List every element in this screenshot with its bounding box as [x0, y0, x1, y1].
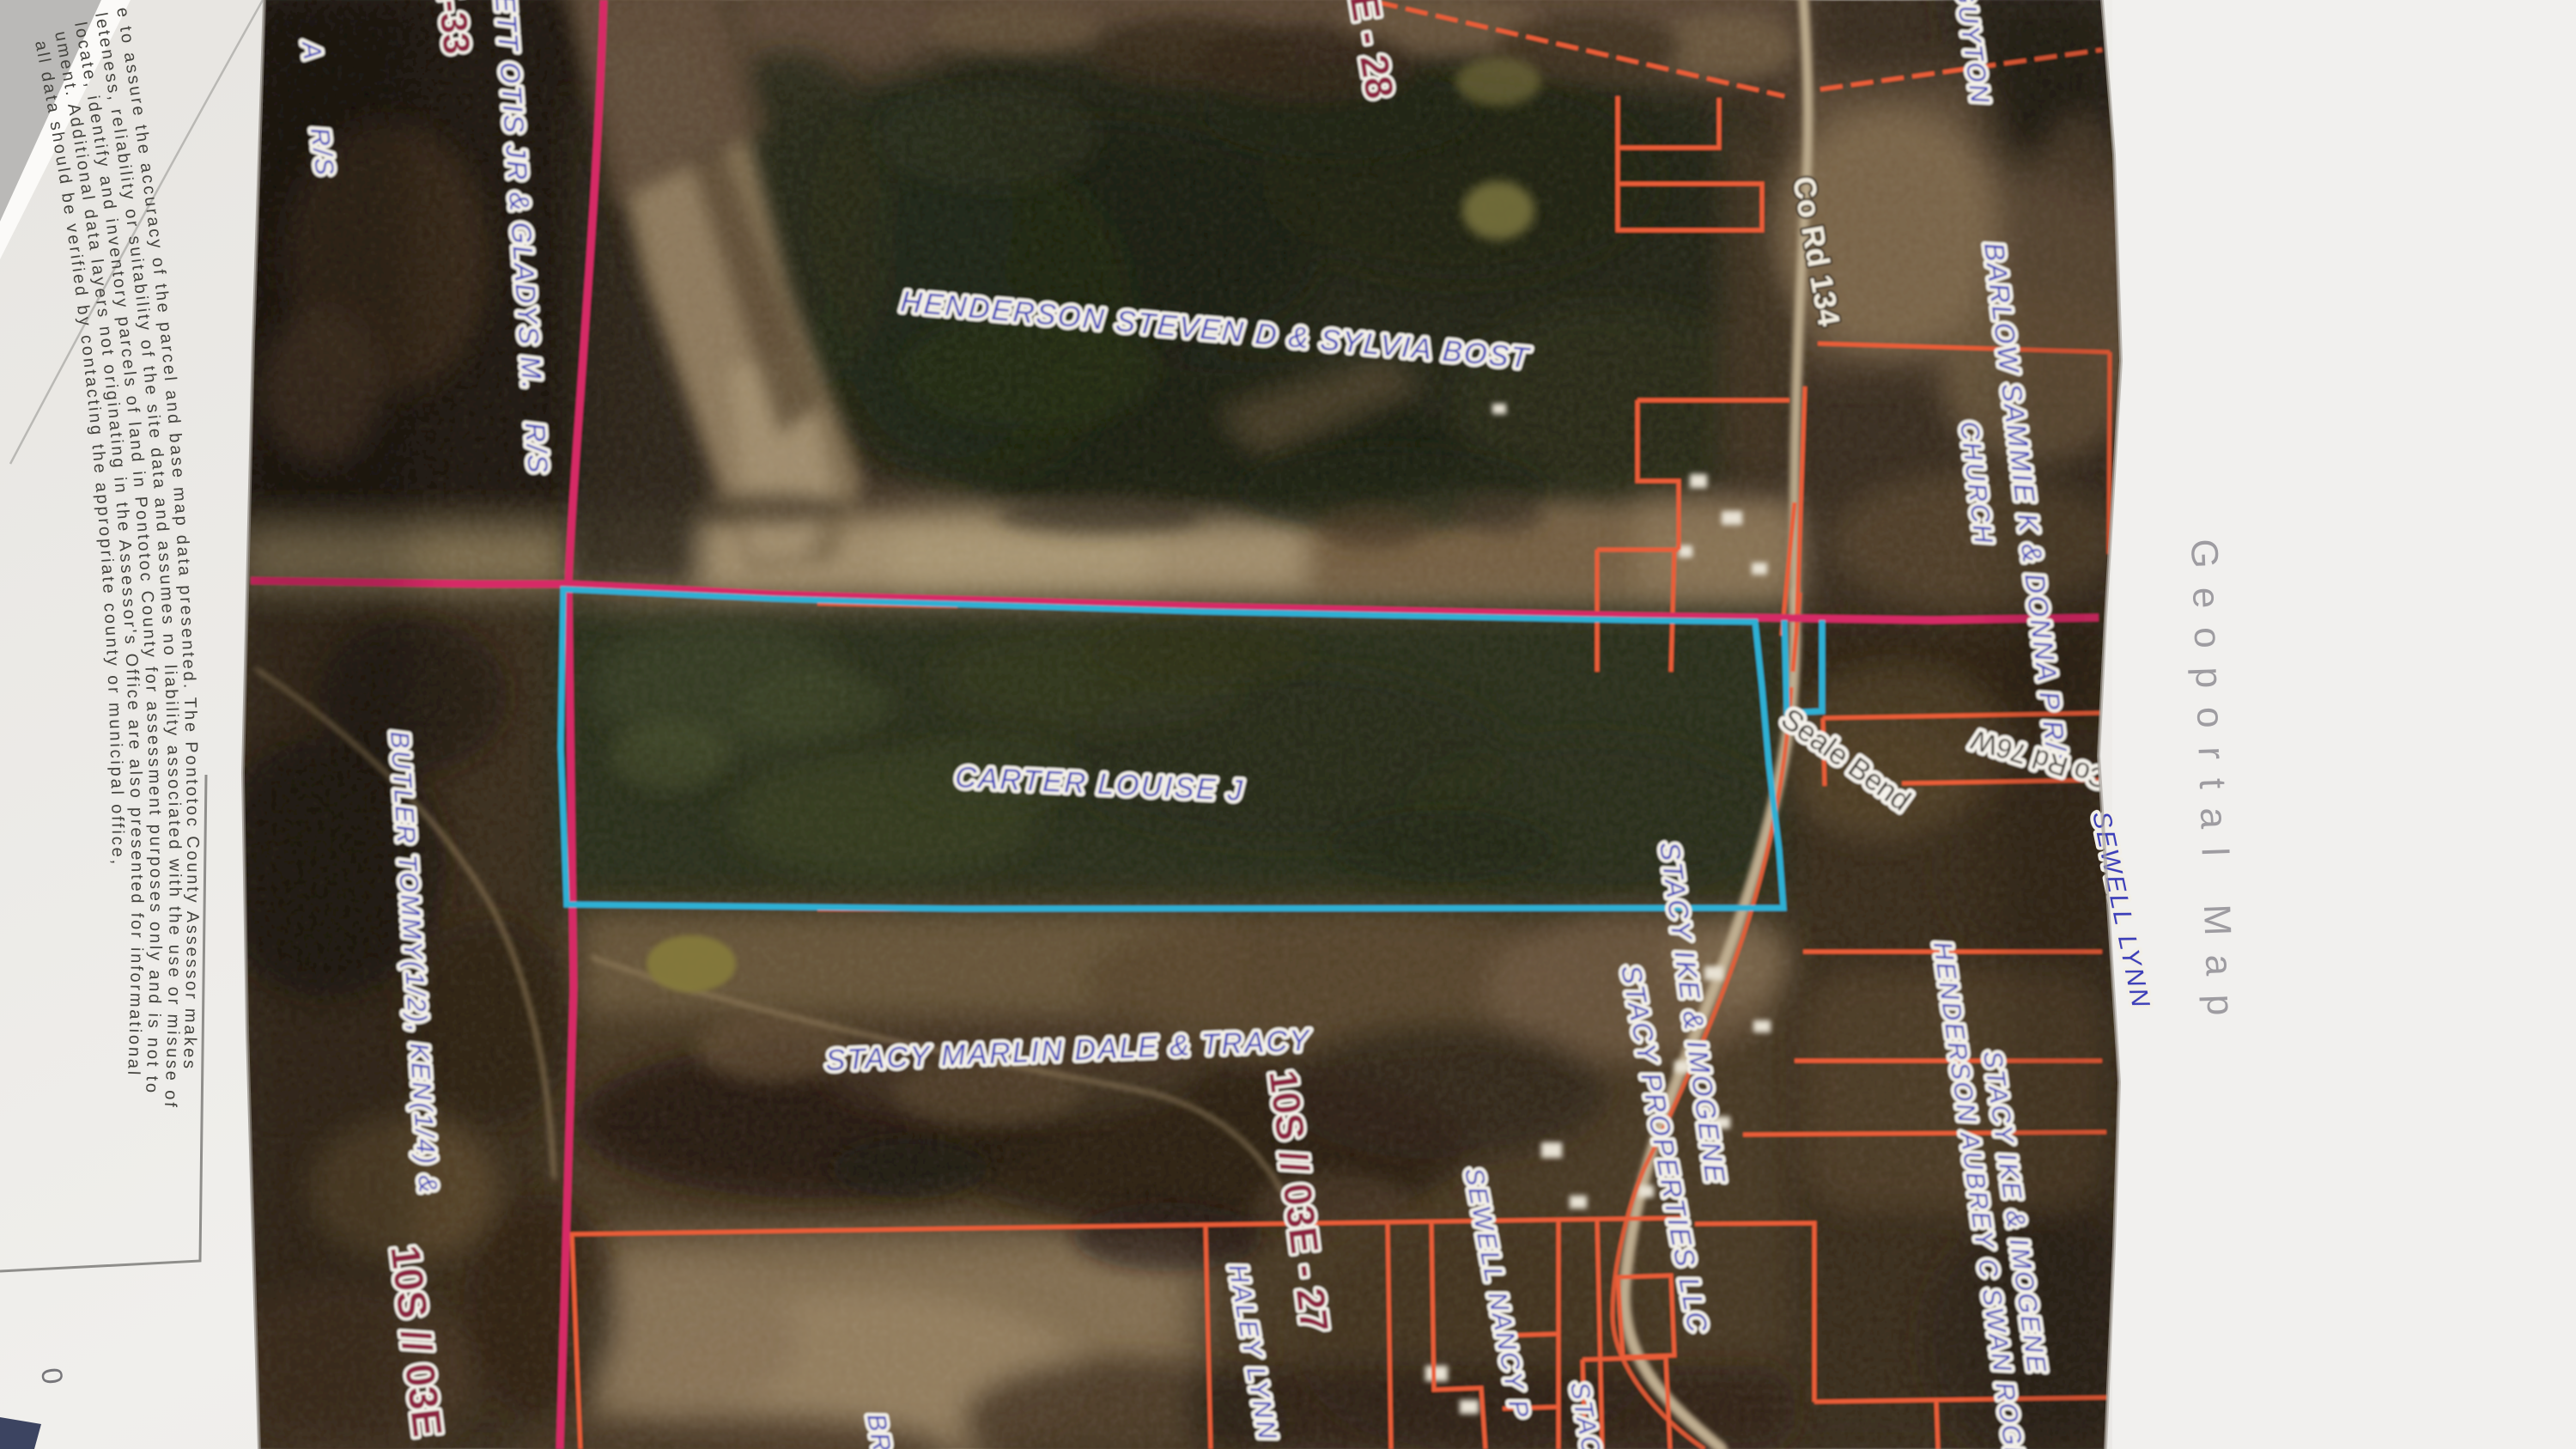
svg-text:E-33: E-33: [428, 0, 477, 56]
svg-text:R/S: R/S: [305, 126, 339, 179]
svg-text:BR: BR: [861, 1411, 896, 1449]
